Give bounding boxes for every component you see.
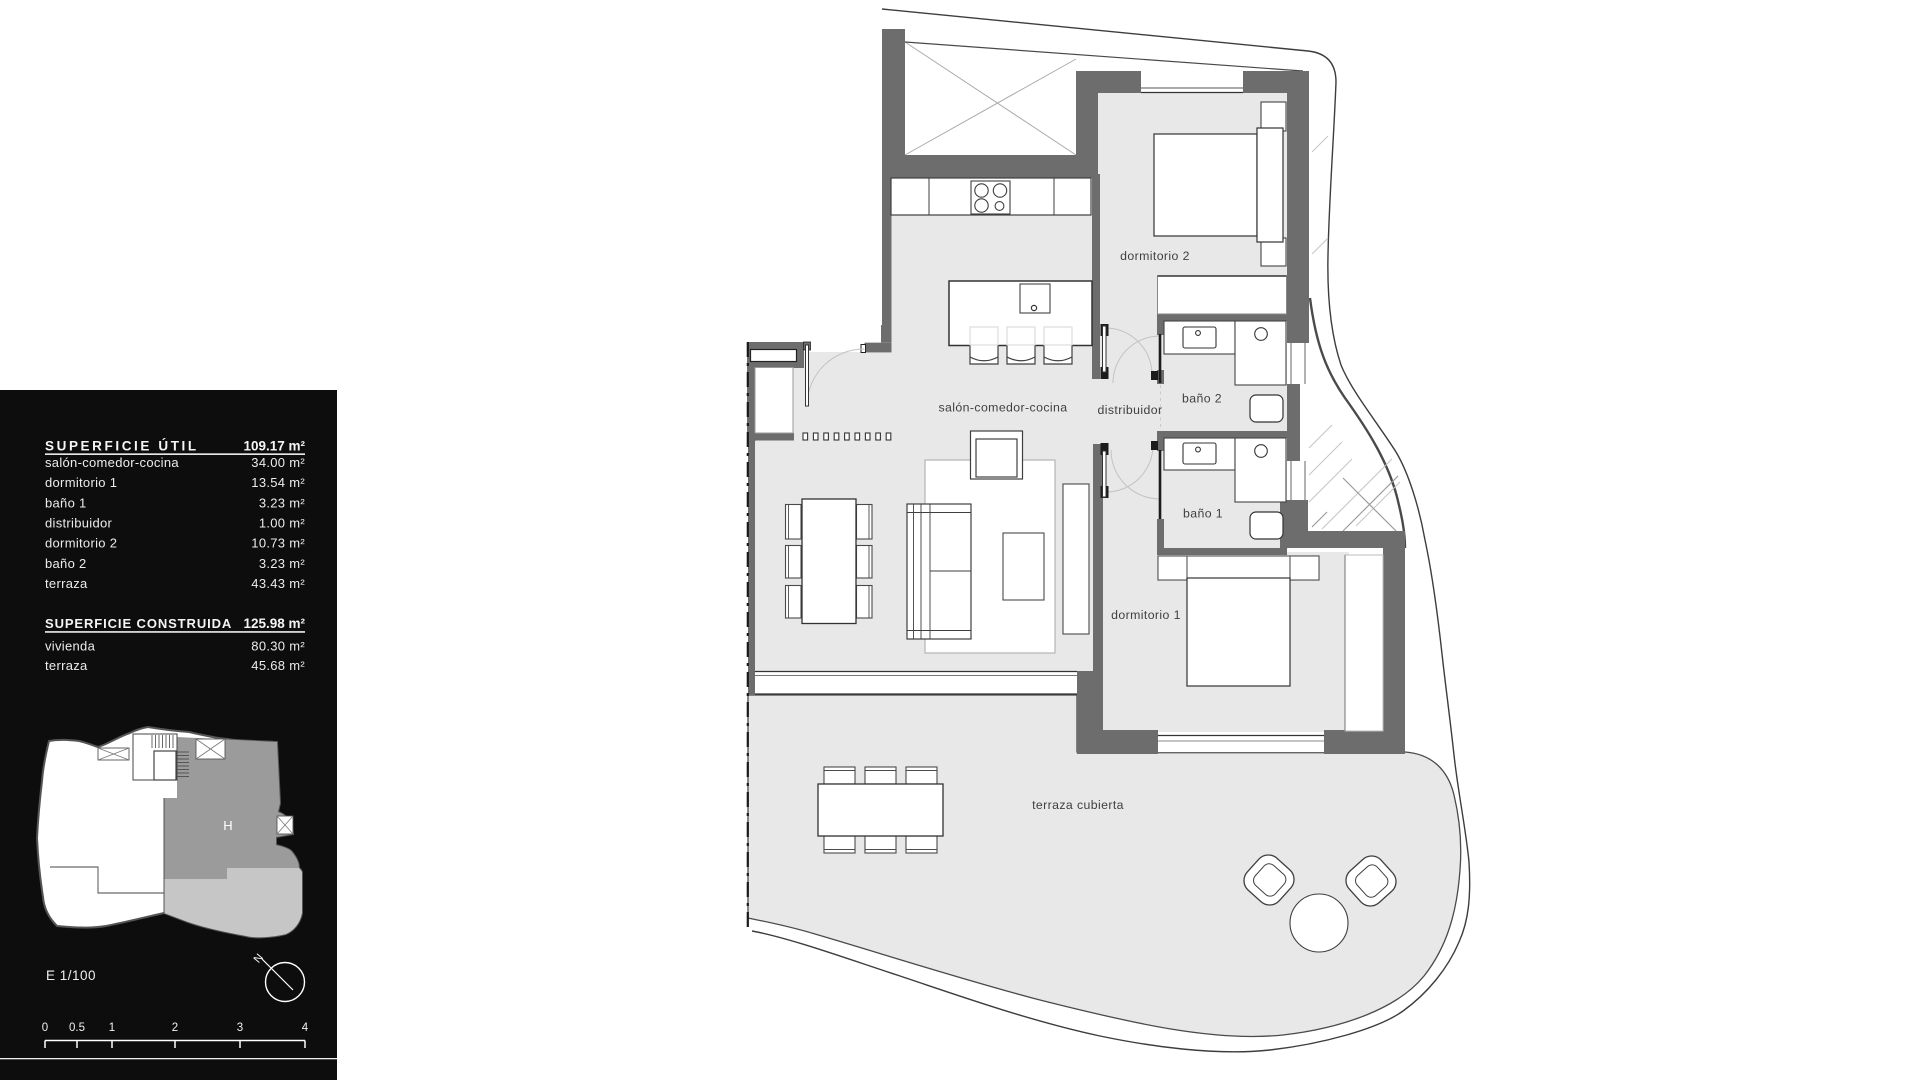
svg-text:109.17 m²: 109.17 m² bbox=[243, 439, 305, 454]
svg-text:dormitorio 1: dormitorio 1 bbox=[45, 475, 117, 490]
svg-text:salón-comedor-cocina: salón-comedor-cocina bbox=[939, 401, 1068, 415]
svg-text:dormitorio 2: dormitorio 2 bbox=[45, 536, 117, 551]
svg-text:distribuidor: distribuidor bbox=[1098, 403, 1163, 417]
svg-text:10.73 m²: 10.73 m² bbox=[251, 536, 305, 551]
svg-text:SUPERFICIE CONSTRUIDA: SUPERFICIE CONSTRUIDA bbox=[45, 616, 232, 631]
svg-text:0: 0 bbox=[42, 1022, 48, 1034]
svg-text:1: 1 bbox=[109, 1022, 115, 1034]
svg-text:dormitorio 1: dormitorio 1 bbox=[1111, 608, 1181, 622]
svg-text:baño 2: baño 2 bbox=[45, 556, 87, 571]
svg-text:80.30 m²: 80.30 m² bbox=[251, 639, 305, 654]
svg-text:2: 2 bbox=[172, 1022, 178, 1034]
svg-text:43.43 m²: 43.43 m² bbox=[251, 576, 305, 591]
svg-text:terraza cubierta: terraza cubierta bbox=[1032, 798, 1124, 812]
svg-text:4: 4 bbox=[302, 1022, 309, 1034]
svg-text:13.54 m²: 13.54 m² bbox=[251, 475, 305, 490]
svg-text:125.98 m²: 125.98 m² bbox=[243, 616, 305, 631]
svg-text:baño 1: baño 1 bbox=[1183, 507, 1223, 521]
svg-text:dormitorio 2: dormitorio 2 bbox=[1120, 249, 1190, 263]
svg-text:terraza: terraza bbox=[45, 658, 88, 673]
svg-text:34.00 m²: 34.00 m² bbox=[251, 455, 305, 470]
svg-text:E 1/100: E 1/100 bbox=[46, 968, 96, 983]
svg-text:distribuidor: distribuidor bbox=[45, 515, 113, 530]
svg-text:baño 1: baño 1 bbox=[45, 495, 87, 510]
svg-text:vivienda: vivienda bbox=[45, 639, 96, 654]
svg-text:3.23 m²: 3.23 m² bbox=[259, 556, 306, 571]
svg-text:1.00 m²: 1.00 m² bbox=[259, 515, 306, 530]
svg-text:terraza: terraza bbox=[45, 576, 88, 591]
svg-text:H: H bbox=[223, 818, 232, 833]
svg-text:salón-comedor-cocina: salón-comedor-cocina bbox=[45, 455, 179, 470]
svg-text:SUPERFICIE ÚTIL: SUPERFICIE ÚTIL bbox=[45, 439, 199, 454]
svg-text:0.5: 0.5 bbox=[69, 1022, 85, 1034]
svg-text:3: 3 bbox=[237, 1022, 243, 1034]
svg-text:baño 2: baño 2 bbox=[1182, 392, 1222, 406]
svg-text:3.23 m²: 3.23 m² bbox=[259, 495, 306, 510]
svg-text:45.68 m²: 45.68 m² bbox=[251, 658, 305, 673]
